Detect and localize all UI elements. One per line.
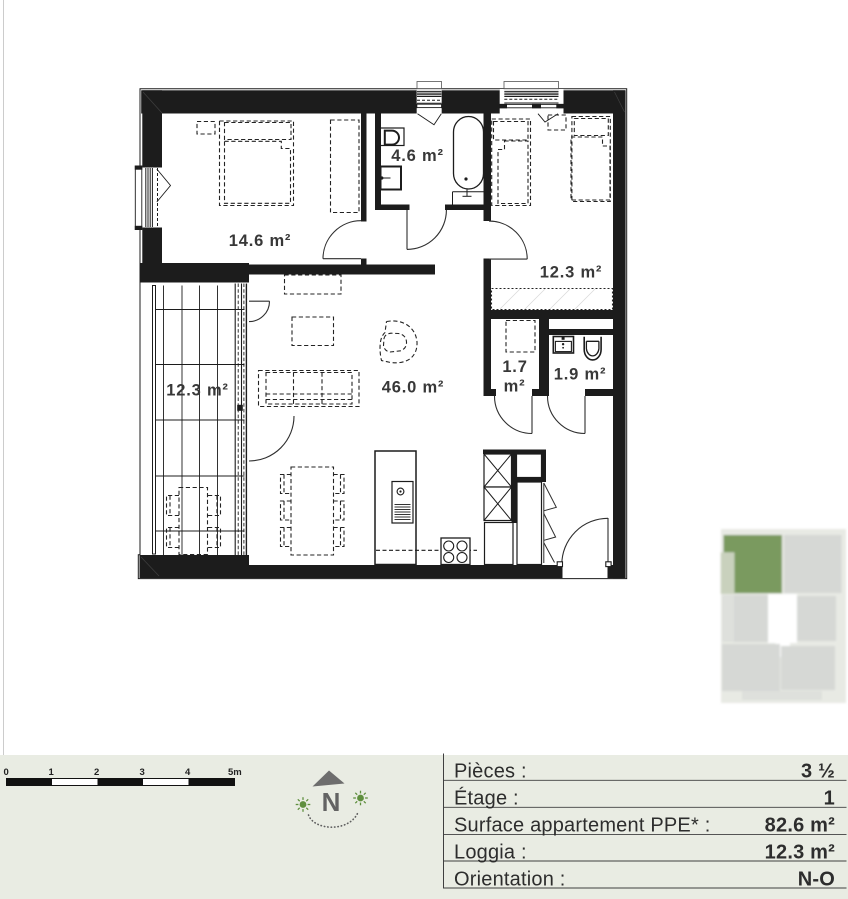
svg-text:5m: 5m bbox=[228, 767, 242, 778]
svg-text:Loggia :: Loggia : bbox=[454, 842, 527, 864]
svg-text:m²: m² bbox=[504, 378, 526, 396]
svg-text:Surface appartement PPE* :: Surface appartement PPE* : bbox=[454, 815, 710, 837]
svg-text:4: 4 bbox=[185, 767, 191, 778]
svg-text:1: 1 bbox=[824, 788, 835, 810]
svg-text:14.6 m²: 14.6 m² bbox=[229, 232, 291, 250]
svg-text:12.3 m²: 12.3 m² bbox=[540, 264, 602, 282]
svg-text:Orientation :: Orientation : bbox=[454, 869, 566, 891]
svg-text:12.3 m²: 12.3 m² bbox=[166, 382, 228, 400]
svg-text:2: 2 bbox=[94, 767, 99, 778]
svg-text:3: 3 bbox=[140, 767, 145, 778]
svg-text:0: 0 bbox=[4, 767, 9, 778]
svg-text:1.9 m²: 1.9 m² bbox=[554, 366, 607, 384]
svg-text:N: N bbox=[322, 787, 341, 817]
svg-text:1.7: 1.7 bbox=[502, 358, 527, 376]
svg-text:Pièces :: Pièces : bbox=[454, 761, 527, 783]
svg-text:Étage :: Étage : bbox=[454, 787, 519, 810]
svg-text:N-O: N-O bbox=[798, 869, 835, 891]
svg-text:3 ½: 3 ½ bbox=[801, 761, 835, 783]
svg-text:46.0 m²: 46.0 m² bbox=[382, 379, 444, 397]
svg-text:1: 1 bbox=[49, 767, 55, 778]
svg-text:12.3 m²: 12.3 m² bbox=[765, 842, 835, 864]
svg-text:4.6 m²: 4.6 m² bbox=[391, 147, 444, 165]
svg-text:82.6 m²: 82.6 m² bbox=[765, 815, 835, 837]
